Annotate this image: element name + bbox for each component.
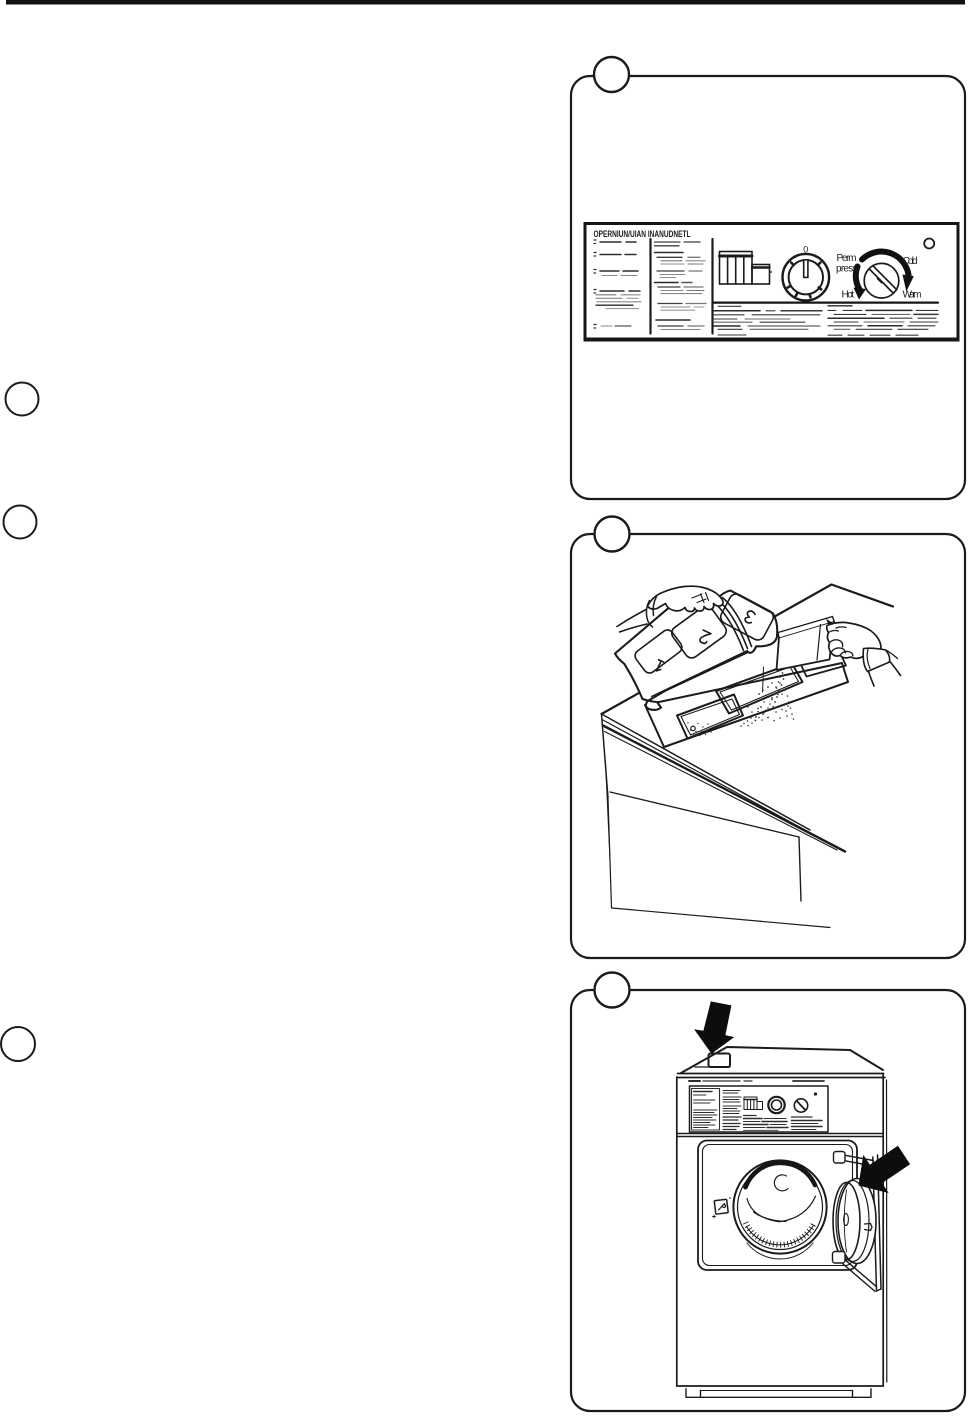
svg-text:Warm: Warm xyxy=(903,290,922,301)
svg-text:0: 0 xyxy=(803,245,808,255)
svg-text:OPERNIUN/UIAN INANUDNETL: OPERNIUN/UIAN INANUDNETL xyxy=(594,229,691,240)
svg-text:Perm: Perm xyxy=(837,253,857,264)
svg-text:Hot: Hot xyxy=(842,290,855,301)
svg-text:Cold: Cold xyxy=(903,256,918,267)
svg-text:press: press xyxy=(836,264,858,275)
